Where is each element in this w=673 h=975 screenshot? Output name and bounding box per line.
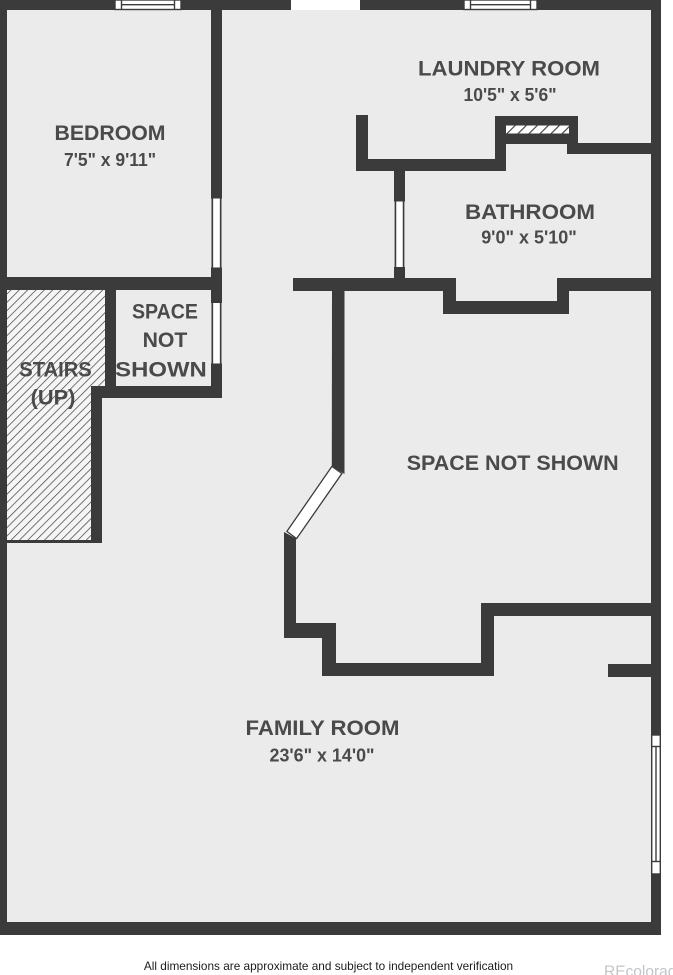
svg-text:All dimensions are approximate: All dimensions are approximate and subje… — [144, 959, 513, 973]
svg-text:BATHROOM: BATHROOM — [465, 200, 595, 224]
svg-text:FAMILY ROOM: FAMILY ROOM — [246, 716, 400, 740]
svg-text:23'6" x 14'0": 23'6" x 14'0" — [270, 746, 375, 766]
svg-text:LAUNDRY ROOM: LAUNDRY ROOM — [418, 57, 600, 81]
svg-text:10'5" x 5'6": 10'5" x 5'6" — [464, 85, 557, 105]
svg-text:SPACE: SPACE — [132, 299, 198, 323]
svg-text:BEDROOM: BEDROOM — [55, 121, 166, 145]
svg-text:SHOWN: SHOWN — [115, 358, 207, 382]
svg-text:9'0" x 5'10": 9'0" x 5'10" — [481, 228, 577, 248]
svg-text:NOT: NOT — [143, 328, 188, 352]
svg-text:SPACE NOT SHOWN: SPACE NOT SHOWN — [407, 451, 619, 475]
svg-text:(UP): (UP) — [31, 386, 76, 410]
svg-text:REcolorado: REcolorado — [604, 964, 673, 975]
svg-text:7'5" x 9'11": 7'5" x 9'11" — [64, 150, 156, 170]
svg-text:STAIRS: STAIRS — [19, 358, 92, 382]
